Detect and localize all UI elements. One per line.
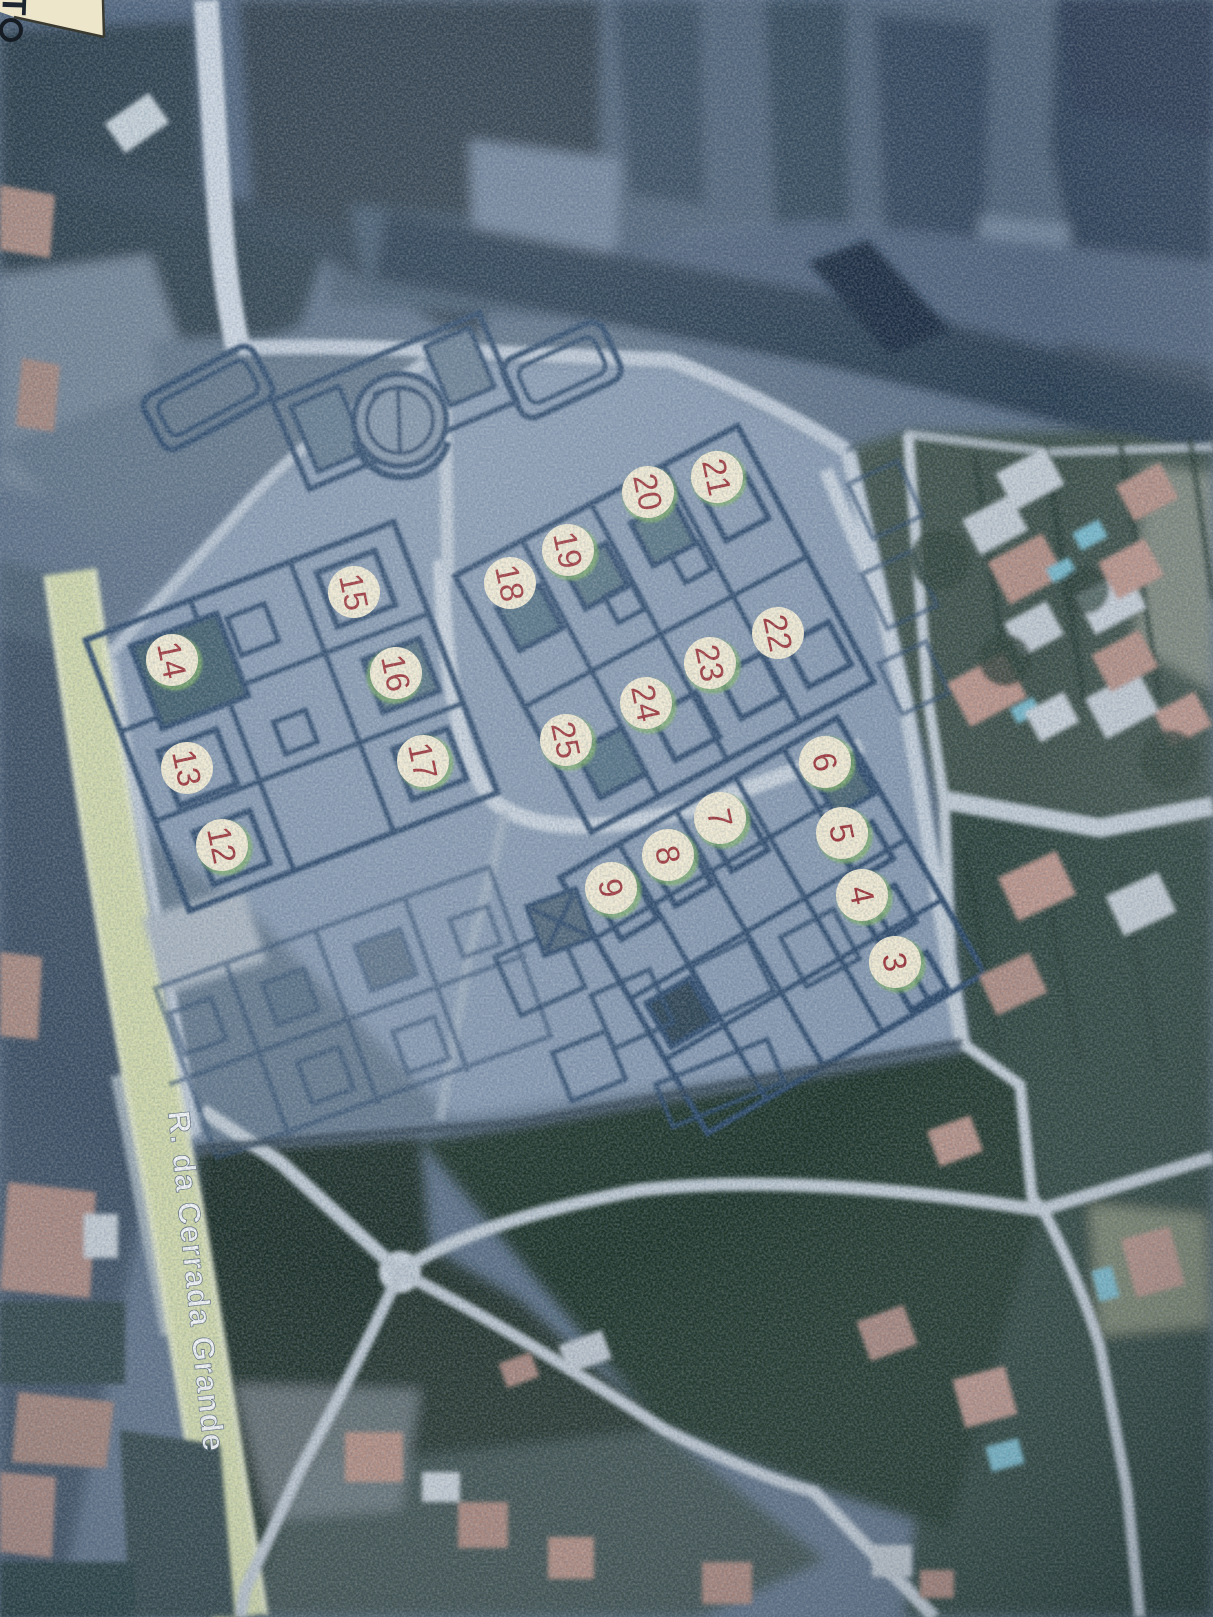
svg-text:T: T: [0, 0, 33, 16]
